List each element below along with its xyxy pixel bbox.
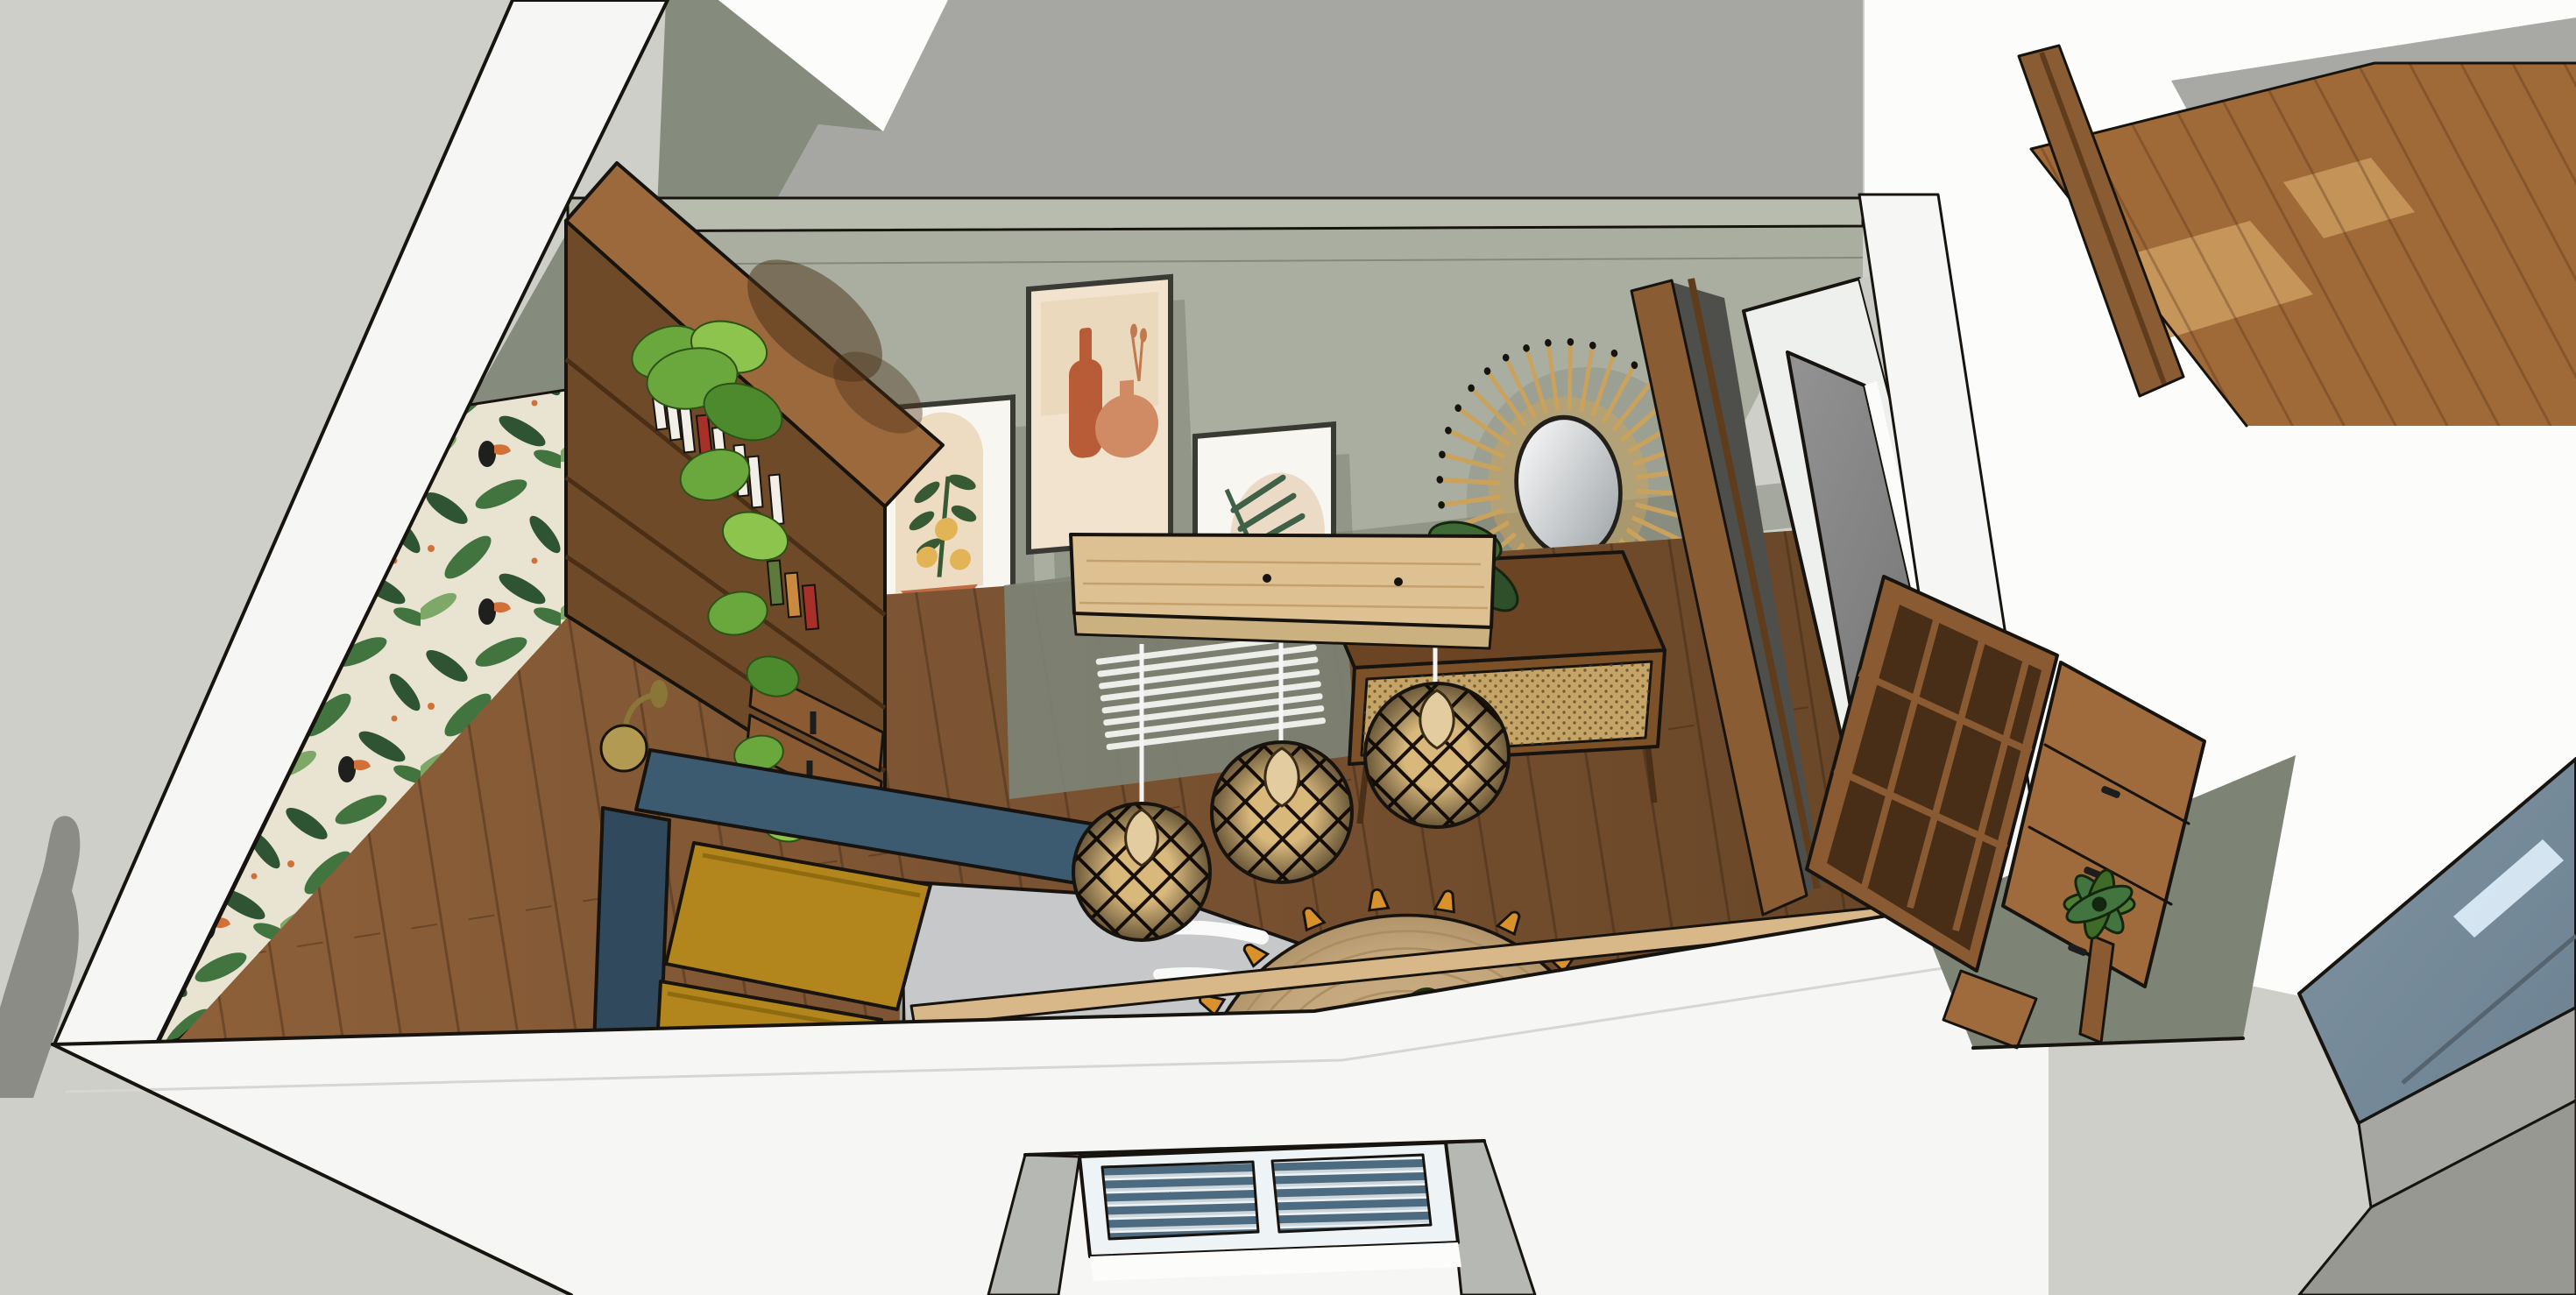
window-blinds-left	[1102, 1162, 1258, 1239]
art-frame-vases	[1029, 277, 1171, 552]
render-stage	[0, 0, 2576, 1295]
ceiling-gray	[775, 0, 1863, 203]
console-top	[1071, 534, 1495, 627]
pendant-lamp-1	[1073, 803, 1210, 940]
pendant-lamp-3	[1365, 683, 1509, 827]
window-blinds-right	[1272, 1155, 1431, 1232]
wall-top-band	[568, 198, 1863, 231]
room-render-canvas	[0, 0, 2576, 1295]
pendant-lamp-2	[1212, 742, 1352, 882]
